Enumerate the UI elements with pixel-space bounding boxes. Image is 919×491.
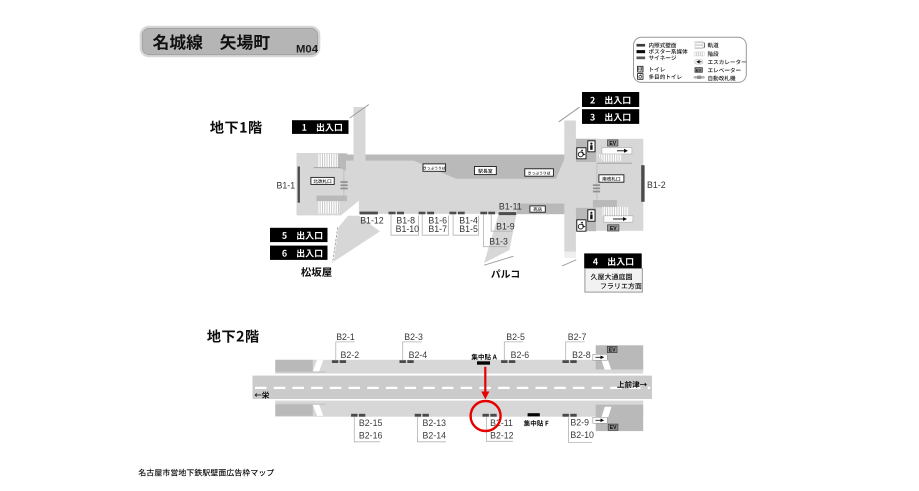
svg-text:B2-12: B2-12 — [490, 431, 514, 441]
svg-text:B1-5: B1-5 — [459, 224, 478, 234]
svg-text:EV: EV — [610, 226, 617, 232]
svg-text:B1-10: B1-10 — [396, 224, 420, 234]
svg-text:B1-11: B1-11 — [499, 201, 522, 211]
svg-text:B2-1: B2-1 — [336, 332, 355, 342]
svg-text:B1-3: B1-3 — [489, 237, 508, 247]
svg-text:B2-5: B2-5 — [506, 332, 525, 342]
svg-text:EV: EV — [696, 67, 702, 72]
svg-text:B2-7: B2-7 — [568, 332, 587, 342]
svg-text:B2-11: B2-11 — [490, 418, 513, 428]
svg-text:B1-1: B1-1 — [277, 180, 296, 190]
svg-text:B2-8: B2-8 — [572, 350, 591, 360]
svg-text:EV: EV — [609, 347, 616, 353]
svg-text:B2-15: B2-15 — [359, 418, 383, 428]
svg-text:B2-16: B2-16 — [359, 431, 383, 441]
svg-text:B1-12: B1-12 — [360, 216, 384, 226]
svg-text:B1-7: B1-7 — [428, 224, 447, 234]
svg-text:B2-3: B2-3 — [404, 332, 423, 342]
svg-text:B2-4: B2-4 — [409, 350, 428, 360]
svg-text:M04: M04 — [296, 44, 319, 56]
svg-text:B2-9: B2-9 — [570, 417, 589, 427]
svg-text:B2-13: B2-13 — [423, 418, 447, 428]
svg-text:B2-2: B2-2 — [341, 350, 360, 360]
svg-text:B2-10: B2-10 — [570, 430, 594, 440]
svg-text:EV: EV — [609, 141, 616, 147]
svg-text:B2-6: B2-6 — [511, 350, 530, 360]
svg-text:B1-9: B1-9 — [496, 221, 515, 231]
svg-text:EV: EV — [610, 425, 617, 431]
svg-text:B1-2: B1-2 — [647, 180, 666, 190]
svg-text:B2-14: B2-14 — [423, 431, 447, 441]
